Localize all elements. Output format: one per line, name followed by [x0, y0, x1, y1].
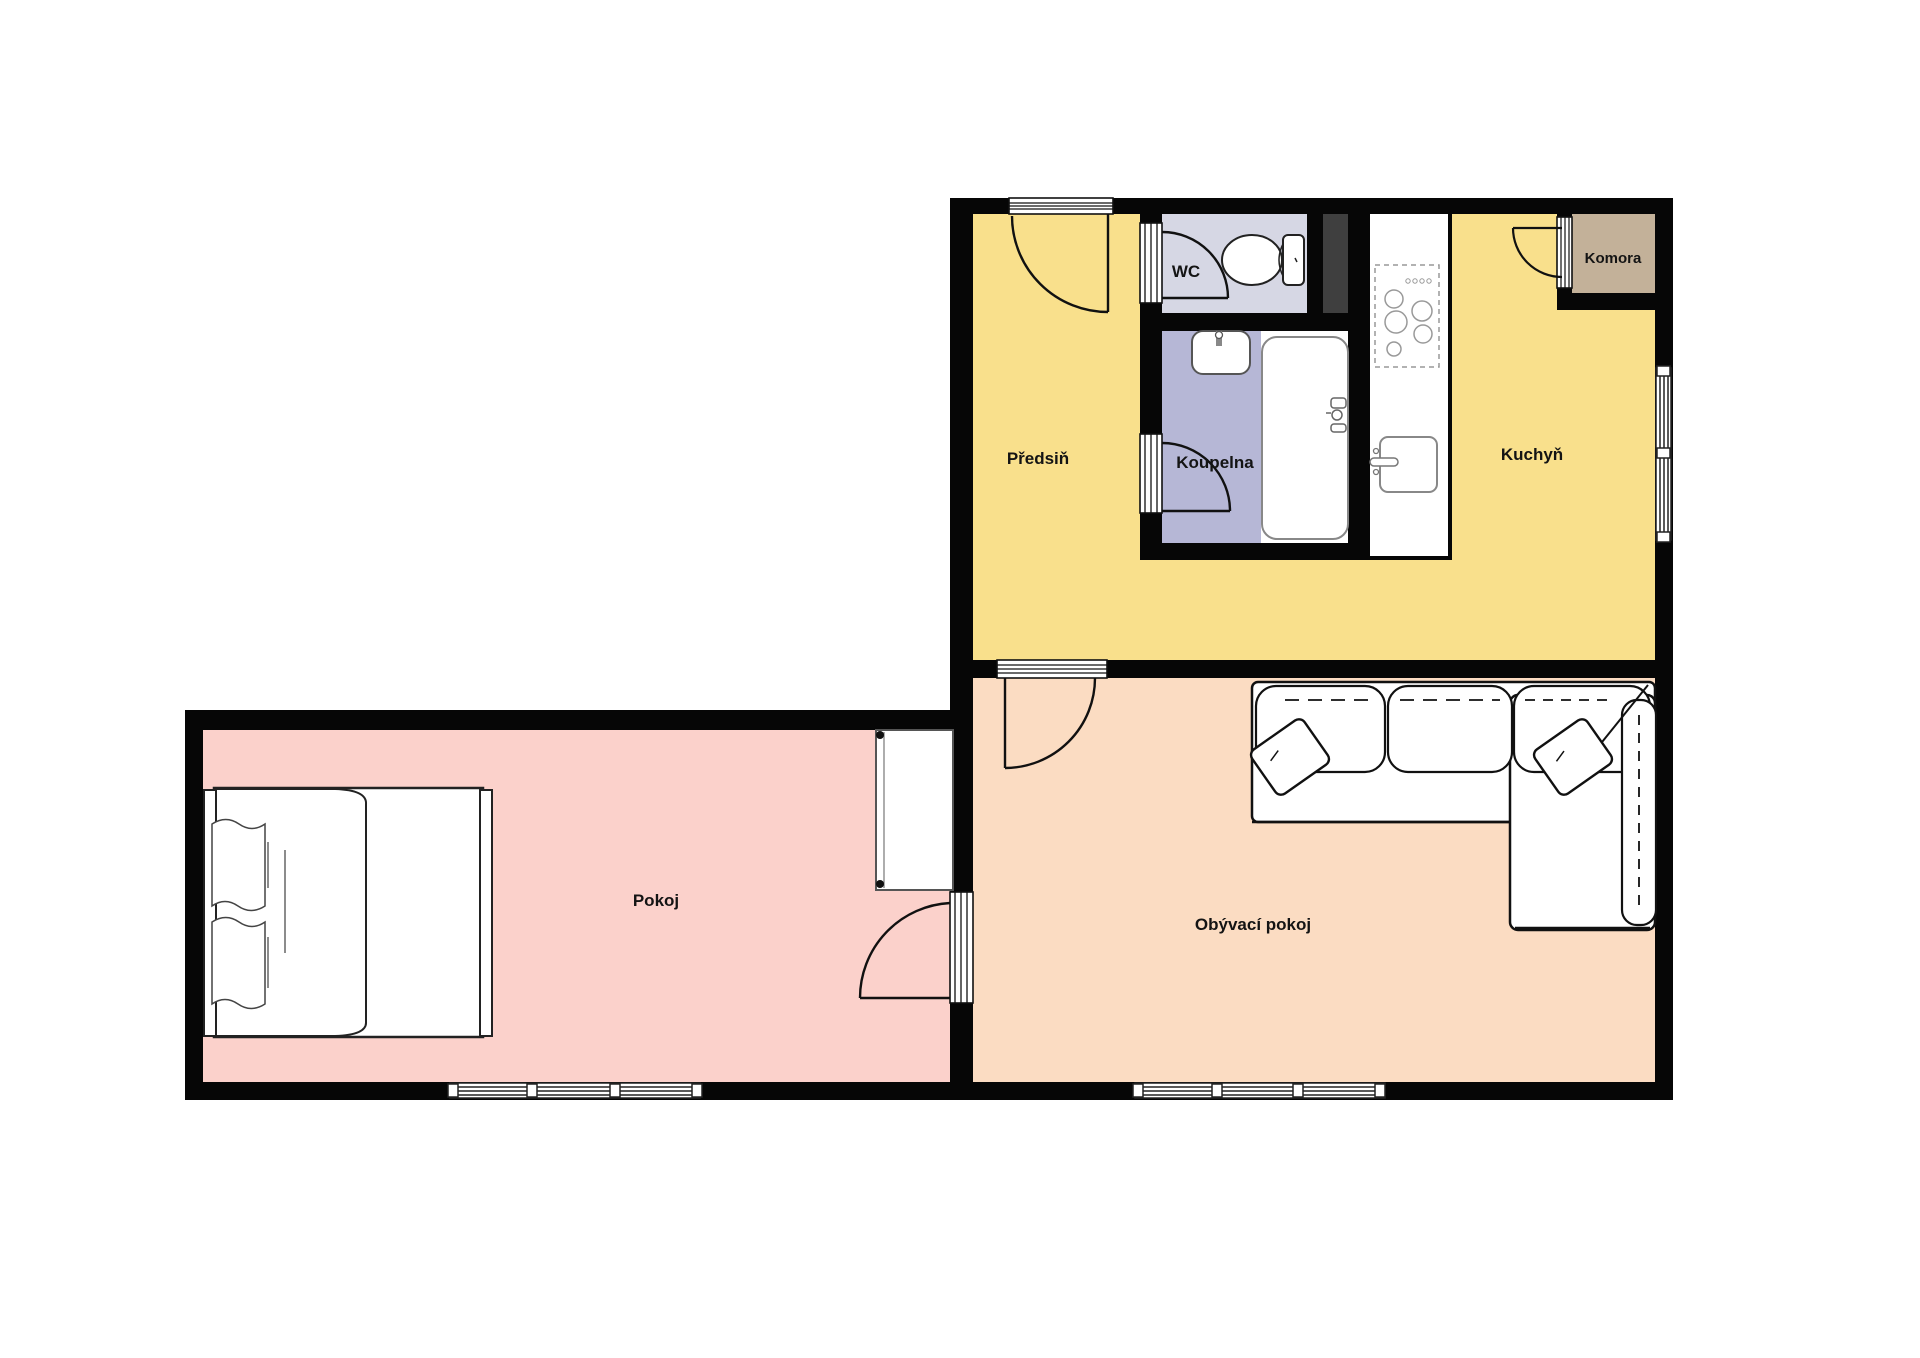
- label-komora: Komora: [1585, 250, 1642, 267]
- wardrobe-icon: [876, 730, 953, 890]
- label-koupelna: Koupelna: [1176, 453, 1254, 472]
- label-predsin: Předsiň: [1007, 449, 1069, 468]
- floorplan-canvas: Předsiň WC Koupelna Kuchyň Komora Pokoj …: [0, 0, 1920, 1358]
- wall-wc-shaft: [1307, 214, 1323, 313]
- ventilation-shaft-icon: [1323, 214, 1348, 313]
- wall-bedroom-top: [185, 710, 973, 730]
- wall-right: [1655, 198, 1673, 1100]
- label-pokoj: Pokoj: [633, 891, 679, 910]
- wall-bath-bottom: [1140, 543, 1370, 560]
- window-kitchen-east: [1656, 366, 1671, 542]
- bathtub-icon: [1262, 337, 1348, 539]
- wall-left: [185, 710, 203, 1100]
- counter-bottom-edge: [1370, 556, 1452, 560]
- label-wc: WC: [1172, 262, 1200, 281]
- kitchen-sink-icon: [1370, 437, 1437, 492]
- wall-bottom: [185, 1082, 1673, 1100]
- toilet-icon: [1222, 235, 1304, 285]
- washbasin-icon: [1192, 331, 1250, 374]
- window-living-south: [1133, 1083, 1385, 1098]
- label-kuchyn: Kuchyň: [1501, 445, 1563, 464]
- double-bed-icon: [204, 788, 492, 1037]
- counter-front-edge: [1448, 214, 1452, 560]
- wall-wc-bathroom: [1140, 313, 1370, 331]
- wall-pantry-bottom: [1557, 293, 1673, 310]
- wall-bath-right: [1348, 214, 1370, 560]
- label-obyvaci: Obývací pokoj: [1195, 915, 1311, 934]
- window-bedroom-south: [448, 1083, 702, 1098]
- floorplan-svg: Předsiň WC Koupelna Kuchyň Komora Pokoj …: [0, 0, 1920, 1358]
